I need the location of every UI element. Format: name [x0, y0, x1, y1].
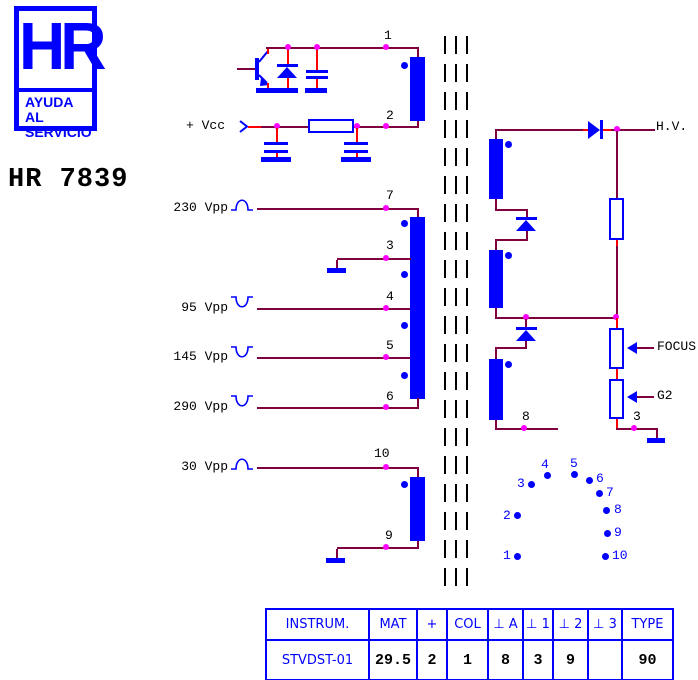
junction-dot [383, 305, 389, 311]
pinout-label-8: 8 [614, 503, 622, 517]
hr-logo: HR AYUDA AL SERVICIO [14, 6, 97, 131]
ground-icon [326, 558, 345, 563]
hv-winding-1 [489, 139, 503, 199]
positive-pulse-waveform-icon [231, 454, 253, 472]
wire [616, 246, 618, 318]
header-gnd-3: ⊥ 3 [588, 609, 622, 640]
pin-label-4: 4 [386, 290, 394, 304]
polarity-dot [505, 141, 512, 148]
pin-label-8: 8 [522, 410, 530, 424]
polarity-dot [401, 62, 408, 69]
value-mat: 29.5 [369, 640, 417, 680]
hr-logo-tagline-line1: AYUDA AL [25, 95, 92, 125]
negative-pulse-waveform-icon [231, 294, 253, 312]
focus-arrow-icon [627, 342, 637, 354]
polarity-dot [505, 361, 512, 368]
pinout-label-2: 2 [503, 509, 511, 523]
header-plus: + [417, 609, 447, 640]
lead [276, 128, 278, 142]
polarity-dot [401, 220, 408, 227]
wire [525, 319, 527, 327]
auxiliary-winding [410, 477, 425, 541]
value-instrum: STVDST-01 [266, 640, 369, 680]
waveform-label-95vpp: 95 Vpp [158, 301, 228, 315]
g2-label: G2 [657, 389, 673, 403]
ground-icon [341, 157, 371, 162]
wire [637, 347, 654, 349]
waveform-label-230vpp: 230 Vpp [158, 201, 228, 215]
ground-icon [647, 438, 665, 443]
wire [337, 547, 419, 549]
junction-dot [285, 44, 291, 50]
lead [616, 369, 618, 379]
g2-arrow-icon [627, 391, 637, 403]
value-type: 90 [622, 640, 673, 680]
polarity-dot [505, 252, 512, 259]
value-plus: 2 [417, 640, 447, 680]
wire [495, 129, 583, 131]
diode-icon [277, 67, 297, 78]
lead [267, 49, 269, 54]
pinout-label-4: 4 [541, 458, 549, 472]
pin-label-3: 3 [386, 239, 394, 253]
pinout-label-5: 5 [570, 457, 578, 471]
primary-winding [410, 57, 425, 121]
junction-dot [314, 44, 320, 50]
wire [616, 131, 618, 198]
pin-label-2: 2 [386, 109, 394, 123]
wire [495, 317, 618, 319]
lead [316, 49, 318, 70]
pin-label-1: 1 [384, 29, 392, 43]
hr-logo-tagline-line2: SERVICIO [25, 125, 92, 140]
wire [495, 209, 528, 211]
diode-icon [516, 330, 536, 341]
wire [495, 239, 528, 241]
polarity-dot [401, 322, 408, 329]
header-type: TYPE [622, 609, 673, 640]
lead [356, 128, 358, 142]
ground-icon [305, 88, 327, 93]
junction-dot [383, 205, 389, 211]
core-line [444, 36, 446, 590]
negative-pulse-waveform-icon [231, 344, 253, 362]
wire [336, 549, 338, 558]
wire [417, 541, 419, 549]
pinout-label-1: 1 [503, 549, 511, 563]
pinout-dot-7 [596, 490, 603, 497]
value-gnd-1: 3 [523, 640, 553, 680]
wire [336, 260, 338, 268]
positive-pulse-waveform-icon [231, 195, 253, 213]
vcc-label: + Vcc [186, 119, 225, 133]
lead [616, 318, 618, 328]
lead [316, 79, 318, 88]
capacitor-plate [344, 142, 368, 145]
resistor [308, 119, 354, 133]
pinout-dot-9 [604, 530, 611, 537]
spec-table: INSTRUM. MAT + COL ⊥ A ⊥ 1 ⊥ 2 ⊥ 3 TYPE … [265, 608, 674, 680]
header-instrum: INSTRUM. [266, 609, 369, 640]
hr-logo-monogram: HR [19, 10, 92, 83]
wire [637, 396, 654, 398]
hv-label: H.V. [656, 120, 687, 134]
pinout-label-6: 6 [596, 472, 604, 486]
lead [603, 129, 611, 131]
pin-label-10: 10 [374, 447, 390, 461]
pinout-dot-4 [544, 472, 551, 479]
pinout-dot-8 [603, 507, 610, 514]
polarity-dot [401, 481, 408, 488]
pinout-dot-2 [514, 512, 521, 519]
junction-dot [383, 404, 389, 410]
wire [656, 428, 658, 438]
ground-icon [327, 268, 346, 273]
pin-label-9: 9 [385, 529, 393, 543]
pinout-dot-1 [514, 553, 521, 560]
diode-icon [516, 220, 536, 231]
pinout-label-10: 10 [612, 549, 628, 563]
waveform-label-145vpp: 145 Vpp [158, 350, 228, 364]
pin-label-7: 7 [386, 189, 394, 203]
page-title: HR 7839 [8, 166, 128, 194]
junction-dot [383, 123, 389, 129]
hr-logo-tagline: AYUDA AL SERVICIO [19, 88, 92, 126]
pinout-label-3: 3 [517, 477, 525, 491]
negative-pulse-waveform-icon [231, 393, 253, 411]
spec-table-value-row: STVDST-01 29.5 2 1 8 3 9 90 [266, 640, 673, 680]
pinout-dot-10 [602, 553, 609, 560]
value-gnd-3 [588, 640, 622, 680]
wire [257, 467, 419, 469]
wire [417, 398, 419, 409]
capacitor-plate [306, 70, 328, 73]
ground-icon [276, 88, 298, 93]
junction-dot [631, 425, 637, 431]
value-gnd-a: 8 [488, 640, 523, 680]
focus-label: FOCUS [657, 340, 696, 354]
polarity-dot [401, 271, 408, 278]
g2-resistor [609, 379, 624, 419]
polarity-dot [401, 372, 408, 379]
waveform-label-30vpp: 30 Vpp [158, 460, 228, 474]
ground-icon [256, 88, 278, 93]
pinout-label-7: 7 [606, 486, 614, 500]
spec-table-header-row: INSTRUM. MAT + COL ⊥ A ⊥ 1 ⊥ 2 ⊥ 3 TYPE [266, 609, 673, 640]
junction-dot [383, 544, 389, 550]
flyback-schematic-page: HR AYUDA AL SERVICIO HR 7839 1 2 + Vcc [0, 0, 698, 680]
vcc-chevron-icon [238, 120, 248, 133]
wire [417, 121, 419, 128]
junction-dot [383, 255, 389, 261]
value-col: 1 [447, 640, 488, 680]
junction-dot [383, 44, 389, 50]
pin-label-6: 6 [386, 390, 394, 404]
capacitor-plate [264, 142, 288, 145]
secondary-winding [410, 217, 425, 399]
header-gnd-1: ⊥ 1 [523, 609, 553, 640]
junction-dot [383, 354, 389, 360]
bleeder-resistor [609, 198, 624, 240]
header-mat: MAT [369, 609, 417, 640]
header-gnd-a: ⊥ A [488, 609, 523, 640]
focus-resistor [609, 328, 624, 369]
ground-icon [261, 157, 291, 162]
core-line [466, 36, 468, 590]
core-line [455, 36, 457, 590]
junction-dot [521, 425, 527, 431]
junction-dot [383, 464, 389, 470]
lead [248, 126, 261, 128]
wire [257, 208, 419, 210]
wire [337, 258, 411, 260]
header-col: COL [447, 609, 488, 640]
pinout-dot-6 [586, 477, 593, 484]
pinout-dot-5 [571, 471, 578, 478]
header-gnd-2: ⊥ 2 [553, 609, 588, 640]
hv-rectifier-diode-icon [588, 121, 600, 139]
hv-winding-3 [489, 359, 503, 420]
wire [257, 407, 419, 409]
hv-winding-2 [489, 250, 503, 308]
wire [616, 428, 658, 430]
pinout-dot-3 [528, 481, 535, 488]
wire [261, 126, 308, 128]
pin-label-5: 5 [386, 339, 394, 353]
pinout-label-9: 9 [614, 526, 622, 540]
lead [287, 49, 289, 65]
value-gnd-2: 9 [553, 640, 588, 680]
wire [495, 347, 527, 349]
waveform-label-290vpp: 290 Vpp [158, 400, 228, 414]
lead [287, 78, 289, 88]
pin-label-3b: 3 [633, 410, 641, 424]
